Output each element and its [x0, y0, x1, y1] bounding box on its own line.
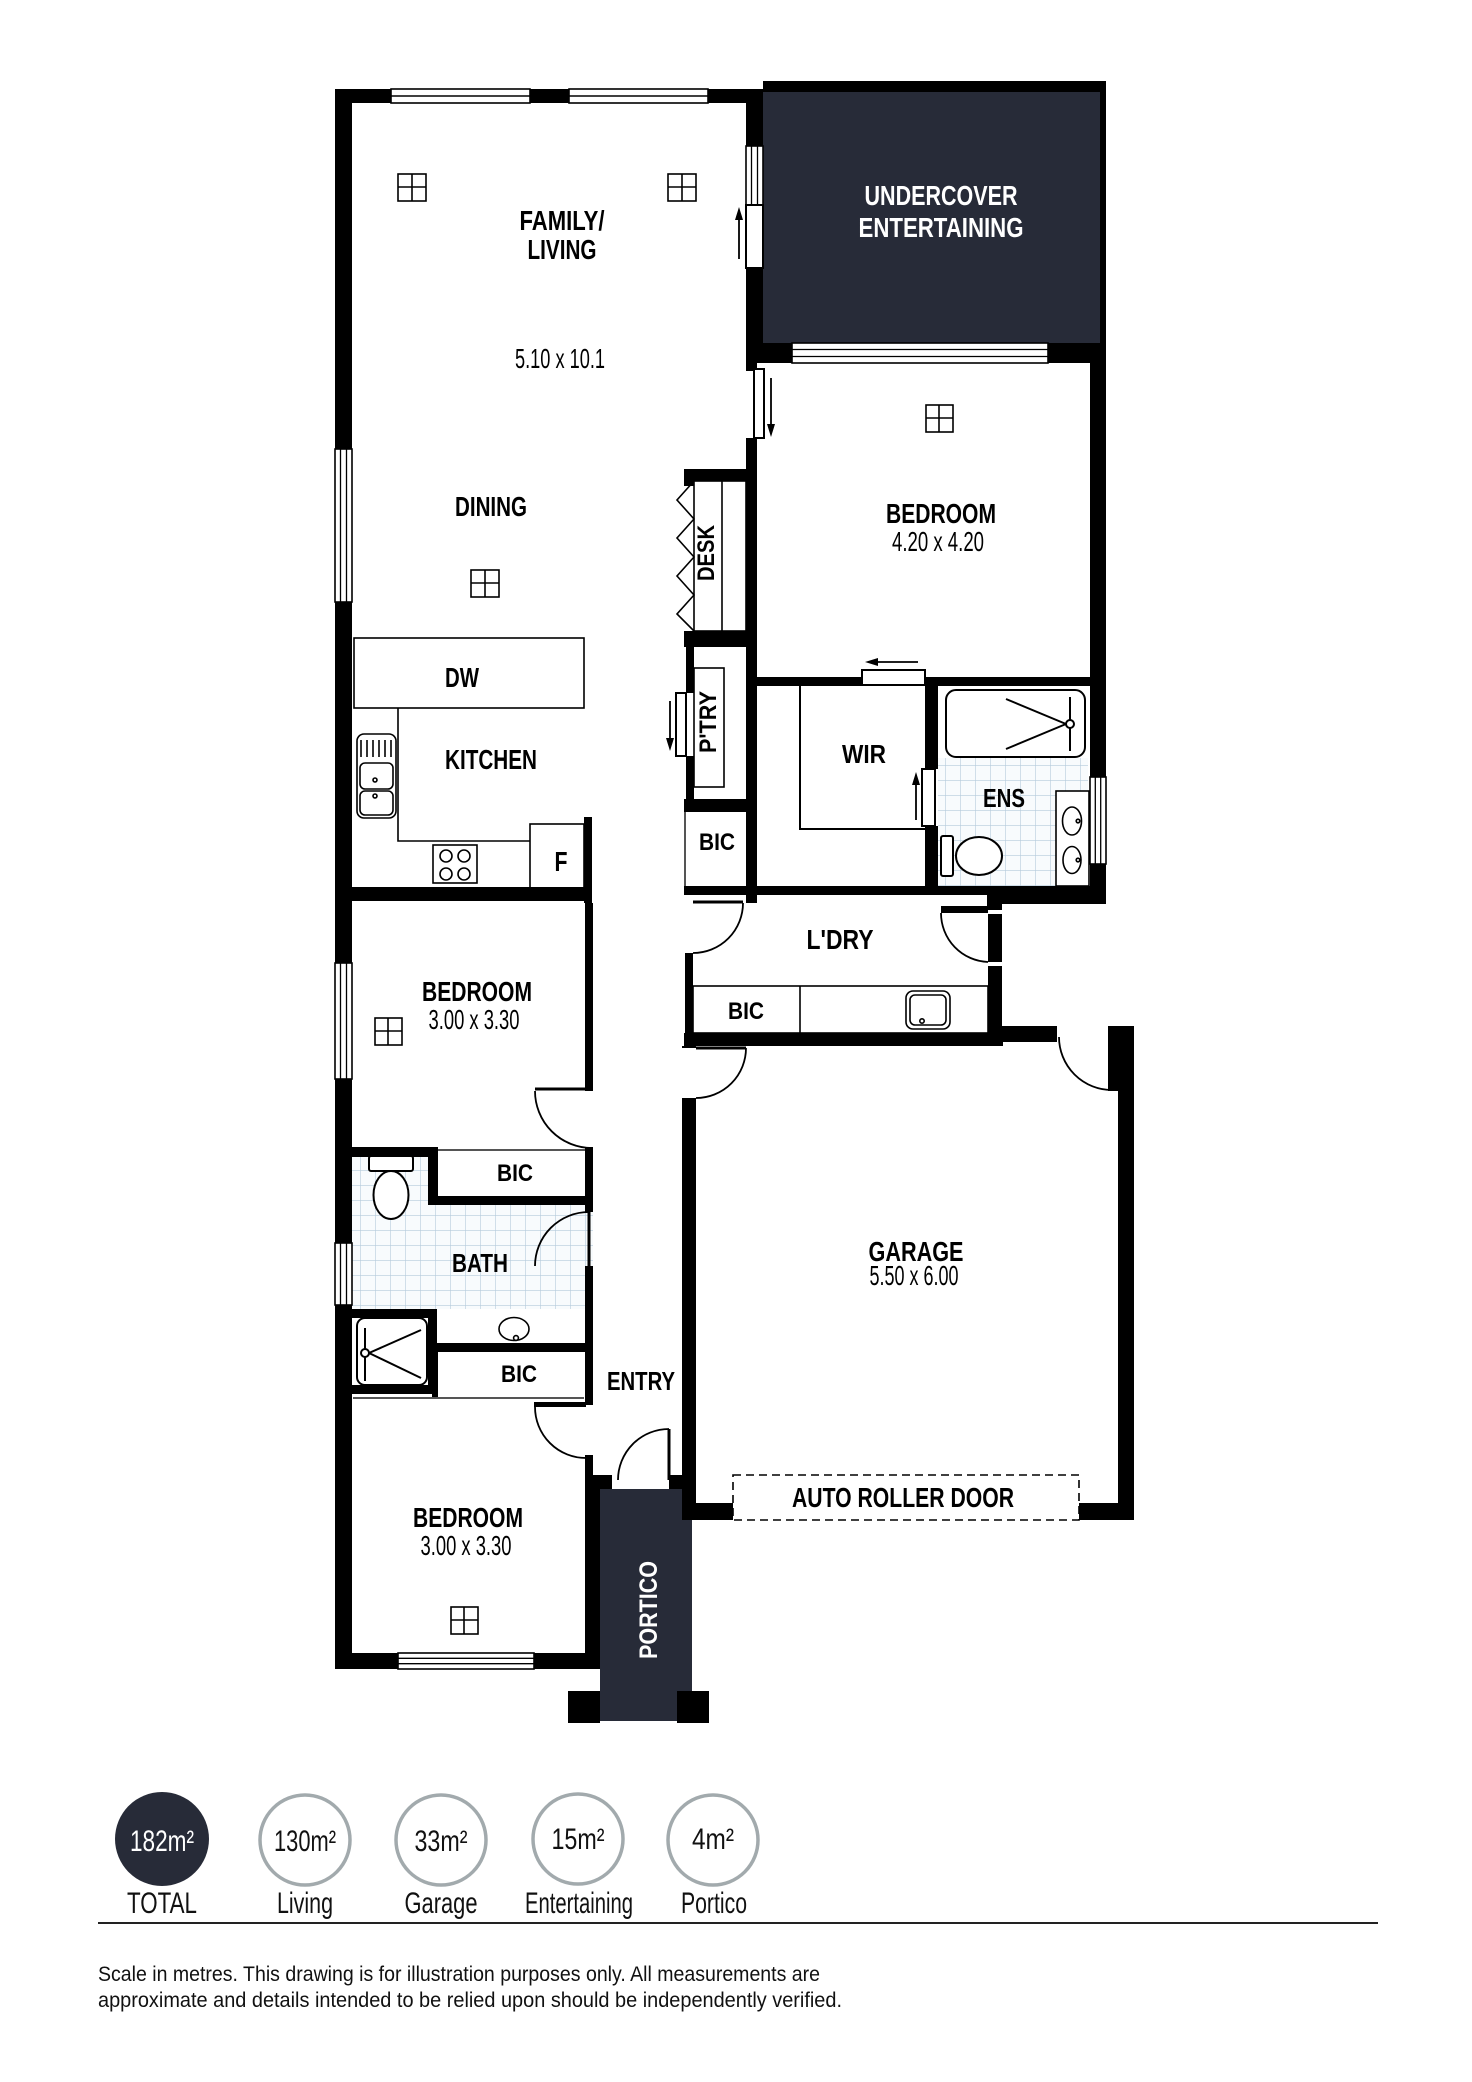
svg-text:130m²: 130m²	[274, 1825, 336, 1858]
svg-text:FAMILY/: FAMILY/	[520, 205, 605, 236]
svg-text:DESK: DESK	[693, 524, 720, 581]
svg-text:F: F	[555, 846, 568, 877]
svg-text:PORTICO: PORTICO	[635, 1561, 663, 1659]
svg-text:KITCHEN: KITCHEN	[445, 744, 537, 775]
svg-text:UNDERCOVER: UNDERCOVER	[865, 180, 1018, 211]
svg-text:DW: DW	[445, 662, 479, 693]
svg-text:L'DRY: L'DRY	[807, 924, 874, 955]
svg-text:4m²: 4m²	[692, 1823, 734, 1856]
svg-text:BIC: BIC	[501, 1361, 537, 1388]
svg-text:Living: Living	[277, 1887, 333, 1920]
svg-text:Portico: Portico	[681, 1887, 747, 1920]
svg-text:Garage: Garage	[405, 1887, 478, 1920]
svg-text:BIC: BIC	[699, 829, 735, 856]
svg-text:approximate and details intend: approximate and details intended to be r…	[98, 1989, 842, 2012]
svg-text:BEDROOM: BEDROOM	[422, 976, 532, 1007]
svg-text:AUTO ROLLER DOOR: AUTO ROLLER DOOR	[792, 1482, 1014, 1513]
svg-text:BIC: BIC	[728, 998, 764, 1025]
svg-text:ENS: ENS	[983, 783, 1025, 813]
svg-text:ENTERTAINING: ENTERTAINING	[859, 212, 1024, 243]
svg-text:BEDROOM: BEDROOM	[413, 1502, 523, 1533]
svg-text:4.20 x 4.20: 4.20 x 4.20	[892, 526, 984, 557]
svg-text:TOTAL: TOTAL	[127, 1887, 197, 1920]
svg-text:DINING: DINING	[455, 491, 527, 522]
svg-text:BATH: BATH	[452, 1248, 508, 1278]
svg-text:Entertaining: Entertaining	[525, 1887, 633, 1920]
svg-text:182m²: 182m²	[130, 1825, 194, 1858]
svg-text:P'TRY: P'TRY	[695, 691, 722, 753]
svg-text:5.10 x 10.1: 5.10 x 10.1	[515, 343, 605, 374]
svg-text:BIC: BIC	[497, 1160, 533, 1187]
svg-text:3.00 x 3.30: 3.00 x 3.30	[421, 1530, 512, 1561]
svg-text:5.50 x 6.00: 5.50 x 6.00	[870, 1260, 959, 1291]
svg-text:WIR: WIR	[842, 739, 886, 769]
svg-text:Scale in metres. This drawing: Scale in metres. This drawing is for ill…	[98, 1963, 820, 1986]
svg-text:BEDROOM: BEDROOM	[886, 498, 996, 529]
svg-text:3.00 x 3.30: 3.00 x 3.30	[429, 1004, 520, 1035]
svg-text:15m²: 15m²	[552, 1823, 605, 1856]
svg-text:33m²: 33m²	[415, 1825, 468, 1858]
svg-text:LIVING: LIVING	[528, 234, 597, 265]
svg-text:ENTRY: ENTRY	[607, 1366, 675, 1396]
